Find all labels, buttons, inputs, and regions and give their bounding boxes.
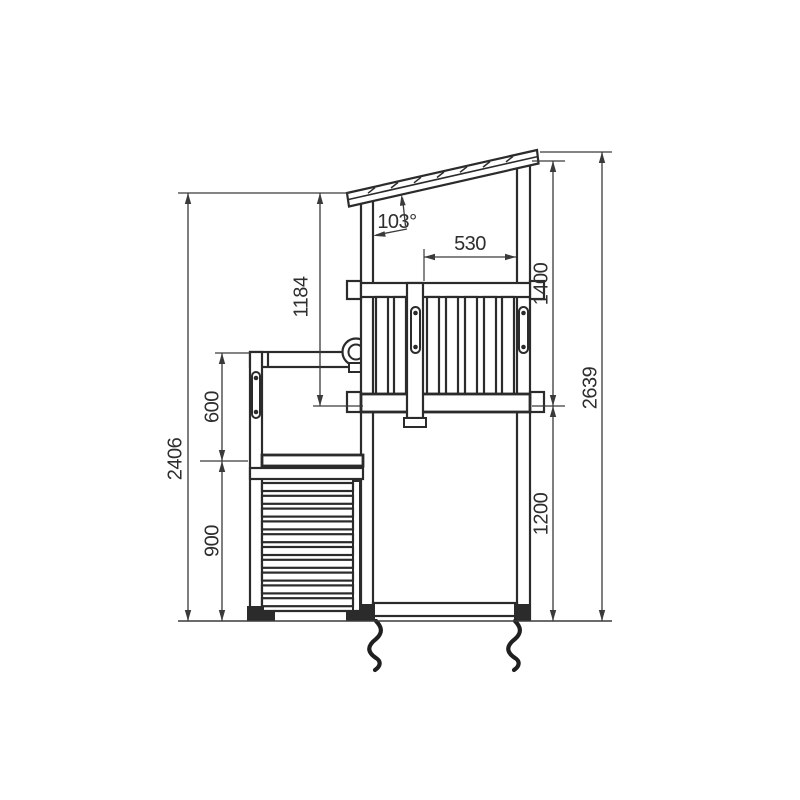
lower-platform-fascia — [250, 468, 363, 479]
ramp-foot — [263, 611, 275, 621]
ground-anchor — [369, 621, 381, 670]
slat — [427, 297, 439, 394]
main-platform — [361, 394, 530, 412]
dim-label-roof-to-platform-left: 1184 — [290, 276, 312, 317]
slat — [262, 496, 353, 504]
main-post-foot — [359, 604, 375, 621]
balcony — [347, 281, 544, 427]
slat — [394, 297, 406, 394]
handle-dot — [254, 376, 259, 381]
slat — [262, 585, 353, 593]
handle-dot — [254, 410, 259, 415]
handle-dot — [413, 311, 418, 316]
playtower-technical-drawing: 2406 600 900 1184 103° 530 1400 1200 263… — [0, 0, 800, 800]
balcony-slats — [376, 297, 514, 394]
balcony-top-rail — [361, 283, 530, 297]
ground-anchor — [508, 621, 520, 670]
dim-label-roof-to-platform-right: 1400 — [530, 262, 552, 305]
center-post-foot — [404, 418, 426, 427]
roof-plank-line — [349, 157, 539, 200]
slat — [484, 297, 496, 394]
drawing-canvas: 2406 600 900 1184 103° 530 1400 1200 263… — [0, 0, 800, 800]
main-post-foot — [514, 604, 531, 621]
slat — [465, 297, 477, 394]
slat — [446, 297, 458, 394]
roof — [347, 150, 539, 207]
main-tower-base — [359, 603, 531, 670]
ramp-slats — [262, 483, 353, 606]
slat — [262, 521, 353, 529]
dim-label-roof-angle: 103° — [377, 211, 416, 233]
slat — [262, 547, 353, 555]
dim-label-opening-width: 530 — [454, 233, 486, 255]
dim-label-platform-height: 1200 — [530, 492, 552, 535]
slat — [262, 560, 353, 568]
rail-end-block — [347, 281, 361, 299]
dim-label-lower-rail: 600 — [201, 391, 223, 423]
slat — [262, 534, 353, 542]
platform-end-block — [530, 392, 544, 412]
slat — [502, 297, 514, 394]
slat — [376, 297, 388, 394]
slat — [262, 573, 353, 581]
lower-platform — [262, 455, 363, 466]
platform-end-block — [347, 392, 361, 412]
bottom-beam — [373, 603, 517, 616]
slat — [262, 509, 353, 517]
ramp-foot — [346, 611, 359, 621]
left-post-foot — [247, 606, 264, 621]
handle-dot — [413, 345, 418, 350]
slat — [262, 483, 353, 491]
handle-dot — [521, 311, 526, 316]
climbing-ramp — [247, 481, 360, 621]
dim-label-overall-right: 2639 — [579, 366, 601, 409]
handle-dot — [521, 345, 526, 350]
dim-label-ramp-section: 900 — [201, 525, 223, 557]
main-right-post — [517, 163, 530, 619]
dim-label-overall-left: 2406 — [164, 437, 186, 480]
slat — [262, 598, 353, 606]
